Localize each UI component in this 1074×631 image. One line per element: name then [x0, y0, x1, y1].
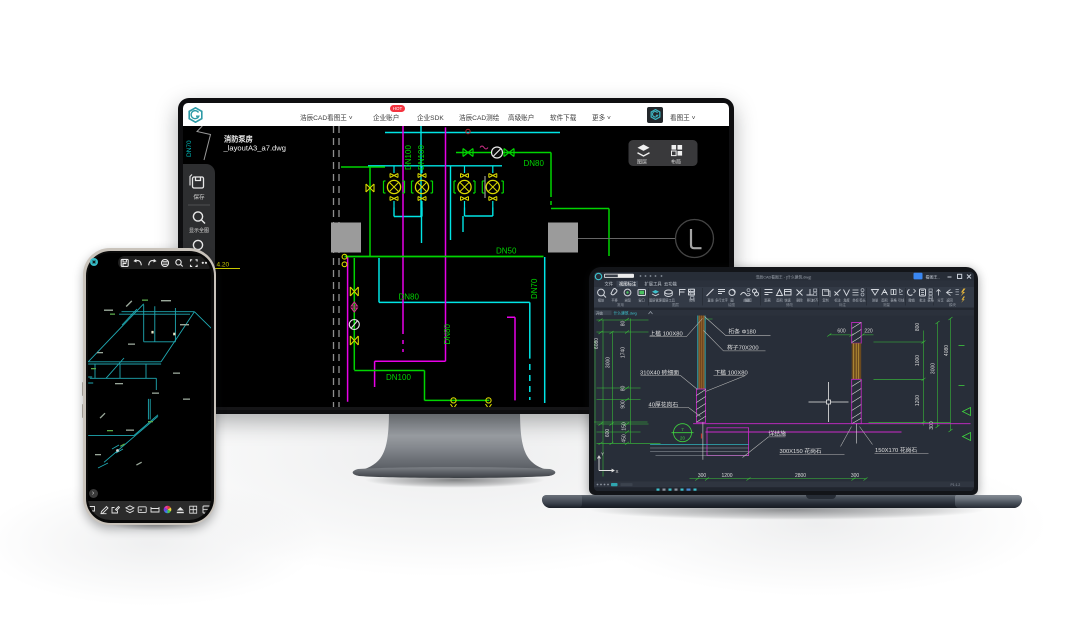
- svg-text:表格: 表格: [890, 297, 897, 302]
- svg-text:标注: 标注: [839, 302, 846, 307]
- svg-text:150X170 花岗石: 150X170 花岗石: [875, 445, 917, 453]
- svg-text:保存: 保存: [193, 193, 205, 201]
- svg-text:图层: 图层: [637, 160, 647, 166]
- svg-text:600: 600: [605, 428, 611, 437]
- svg-text:对齐: 对齐: [811, 297, 818, 302]
- svg-text:20: 20: [680, 435, 685, 440]
- svg-text:上槛 100X80: 上槛 100X80: [649, 329, 682, 337]
- svg-text:1000: 1000: [915, 354, 921, 365]
- svg-text:云功能: 云功能: [664, 280, 678, 287]
- svg-text:面积: 面积: [776, 297, 783, 302]
- svg-text:测量: 测量: [883, 302, 890, 307]
- svg-text:图层管理: 图层管理: [649, 297, 663, 302]
- svg-text:圆: 圆: [730, 298, 733, 302]
- svg-text:标注: 标注: [834, 297, 841, 302]
- svg-text:300: 300: [697, 473, 706, 479]
- svg-text:DN80: DN80: [524, 159, 545, 168]
- svg-text:修改: 修改: [786, 302, 793, 307]
- svg-text:P1:1.2: P1:1.2: [950, 483, 960, 487]
- svg-text:复制: 复制: [822, 297, 828, 302]
- svg-text:扩展工具: 扩展工具: [644, 280, 662, 287]
- svg-text:缩放: 缩放: [597, 297, 604, 302]
- svg-text:桁条 Φ180: 桁条 Φ180: [728, 327, 756, 335]
- svg-text:距离: 距离: [764, 297, 770, 302]
- svg-text:多行文字: 多行文字: [715, 297, 728, 302]
- svg-text:分享: 分享: [937, 297, 944, 302]
- svg-text:2800: 2800: [794, 473, 805, 479]
- svg-text:80: 80: [620, 320, 626, 326]
- svg-text:模块: 模块: [949, 302, 956, 307]
- svg-text:310X40 砖细面: 310X40 砖细面: [640, 368, 679, 376]
- svg-text:DN100: DN100: [386, 373, 411, 382]
- svg-text:返回: 返回: [946, 297, 952, 302]
- svg-text:下槛 100X80: 下槛 100X80: [714, 368, 747, 376]
- svg-text:布局: 布局: [671, 159, 681, 166]
- svg-text:表格: 表格: [927, 297, 934, 302]
- svg-text:图层工具: 图层工具: [662, 297, 676, 302]
- svg-text:圆弧: 圆弧: [745, 297, 752, 302]
- svg-text:450: 450: [621, 434, 627, 443]
- svg-text:3000: 3000: [605, 356, 611, 367]
- svg-text:快速: 快速: [784, 297, 791, 302]
- svg-text:修剪: 修剪: [689, 297, 695, 302]
- svg-text:什么建筑.dwg: 什么建筑.dwg: [613, 310, 636, 315]
- svg-text:梣子70X200: 梣子70X200: [727, 343, 759, 351]
- svg-text:300: 300: [929, 421, 935, 430]
- svg-text:X: X: [615, 469, 618, 474]
- svg-text:1200: 1200: [915, 394, 921, 405]
- svg-text:DN80: DN80: [399, 293, 420, 302]
- svg-text:绘图: 绘图: [728, 302, 735, 307]
- svg-text:Y: Y: [601, 451, 604, 456]
- svg-text:全图: 全图: [624, 297, 630, 302]
- svg-text:直线: 直线: [707, 297, 714, 302]
- svg-text:300X150 花岗石: 300X150 花岗石: [779, 446, 821, 454]
- svg-text:视图标注: 视图标注: [619, 280, 637, 287]
- svg-text:1740: 1740: [620, 346, 626, 357]
- svg-text:150: 150: [621, 422, 627, 431]
- svg-text:DN100: DN100: [404, 145, 413, 170]
- svg-text:220: 220: [864, 328, 873, 334]
- svg-text:4.20: 4.20: [217, 262, 230, 269]
- svg-text:900: 900: [620, 400, 626, 409]
- svg-text:600: 600: [837, 328, 846, 334]
- svg-text:3000: 3000: [930, 362, 936, 373]
- svg-text:浩辰CAD看图王 - [什么建筑.dwg]: 浩辰CAD看图王 - [什么建筑.dwg]: [755, 274, 811, 279]
- svg-text:300: 300: [850, 473, 859, 479]
- svg-text:撤销: 撤销: [908, 297, 915, 302]
- svg-text:DN80: DN80: [443, 323, 452, 344]
- svg-text:1200: 1200: [721, 473, 732, 479]
- svg-text:4080: 4080: [944, 344, 950, 355]
- svg-text:DN50: DN50: [496, 247, 517, 256]
- svg-text:常用: 常用: [617, 302, 624, 307]
- svg-text:批注: 批注: [919, 297, 926, 302]
- svg-text:40厚花岗石: 40厚花岗石: [648, 400, 678, 408]
- svg-text:详结施: 详结施: [768, 429, 786, 437]
- svg-text:面积: 面积: [881, 297, 888, 302]
- svg-text:800: 800: [915, 322, 921, 331]
- svg-text:图层: 图层: [672, 302, 679, 307]
- svg-text:开始: 开始: [596, 310, 603, 315]
- svg-text:文件: 文件: [604, 280, 613, 287]
- svg-text:测量: 测量: [871, 297, 878, 302]
- svg-text:窗口: 窗口: [638, 297, 644, 302]
- svg-text:6080: 6080: [594, 337, 600, 348]
- svg-text:_layoutA3_a7.dwg: _layoutA3_a7.dwg: [223, 144, 287, 153]
- svg-text:DN70: DN70: [530, 278, 539, 299]
- svg-text:显示全图: 显示全图: [189, 227, 209, 234]
- svg-text:角度: 角度: [843, 297, 850, 302]
- svg-text:平移: 平移: [611, 297, 618, 302]
- svg-text:DN70: DN70: [186, 140, 193, 157]
- svg-text:消防泵房: 消防泵房: [224, 135, 253, 144]
- svg-text:80: 80: [620, 385, 626, 391]
- svg-text:弧长: 弧长: [859, 297, 866, 302]
- svg-text:DN100: DN100: [417, 145, 426, 170]
- svg-text:删除: 删除: [796, 297, 803, 302]
- svg-text:引线: 引线: [897, 297, 904, 302]
- svg-text:看图王..: 看图王..: [925, 273, 939, 279]
